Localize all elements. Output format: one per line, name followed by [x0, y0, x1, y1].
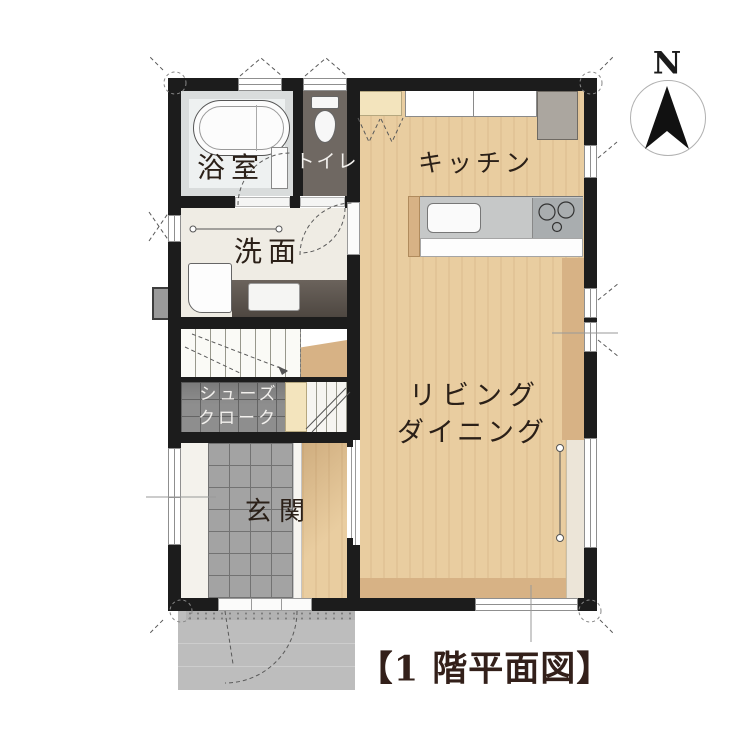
room-label-kitchen: キッチン: [418, 151, 534, 176]
room-label-toilet: トイレ: [295, 153, 358, 172]
room-label-entrance: 玄関: [245, 499, 313, 525]
window-sill-strip: [566, 440, 585, 600]
window-mark-right-b: [598, 283, 619, 300]
wall-top: [168, 78, 597, 91]
ldk-floor-bottom-band: [357, 578, 566, 598]
window-top-toilet: [303, 78, 347, 91]
opening-stub-top: [347, 440, 353, 447]
porch-seam-2: [178, 666, 355, 667]
stove: [532, 198, 583, 238]
bathroom-door-opening: [235, 197, 290, 207]
entrance-door-tick-1: [251, 599, 252, 610]
stairs-divider: [300, 329, 301, 377]
opening-stub-bottom: [347, 538, 353, 545]
entrance-side-ledge: [181, 443, 209, 598]
porch-dotted-band: [186, 611, 355, 620]
floor-plan-title: 【1 階平面図】: [358, 652, 613, 687]
hall-living-opening: [347, 440, 360, 545]
window-kitchen-right: [584, 145, 597, 178]
wall-main-vert-upper: [347, 91, 360, 202]
stairs-landing: [301, 340, 347, 377]
compass-circle: [630, 80, 706, 156]
stairs-upper: [181, 329, 301, 377]
window-open-mark-top-1: [240, 58, 282, 76]
window-top-bathroom: [238, 78, 282, 91]
pantry-cabinet: [358, 91, 402, 116]
room-label-living-line2: ダイニング: [397, 420, 547, 447]
window-right-lower: [584, 322, 597, 352]
window-open-mark-top-2: [305, 58, 347, 76]
wall-below-cloak: [168, 432, 360, 443]
compass-north-label: N: [653, 49, 681, 80]
floor-plan: 浴室 トイレ 洗面 キッチン リビング ダイニング シューズ クローク 玄関 N…: [0, 0, 750, 750]
kitchen-counter-front: [420, 238, 583, 257]
room-label-washroom: 洗面: [234, 238, 302, 266]
room-label-living-line1: リビング: [409, 383, 541, 410]
window-entrance-left: [168, 448, 181, 545]
washroom-door-opening: [347, 202, 360, 255]
vanity-sink: [248, 283, 300, 311]
room-label-shoe-closet-line2: クローク: [198, 411, 278, 428]
wall-cabinet: [405, 90, 537, 117]
wall-stairs-cloak: [181, 377, 360, 382]
porch: [178, 611, 355, 690]
bath-shelf: [271, 147, 288, 189]
refrigerator: [537, 91, 578, 140]
room-label-shoe-closet-line1: シューズ: [199, 387, 278, 404]
shoe-closet-cabinet: [285, 382, 307, 432]
toilet-door-opening: [300, 197, 345, 207]
wall-main-vert-mid: [347, 255, 360, 440]
kitchen-counter-end-cap: [408, 196, 420, 257]
wall-bath-toilet: [293, 91, 303, 196]
toilet-tank: [311, 96, 339, 109]
ldk-floor-right-band: [562, 258, 584, 440]
window-mullion: [169, 497, 180, 498]
window-living-bottom: [475, 598, 578, 611]
porch-seam-1: [178, 643, 355, 644]
wall-below-bath-b: [290, 196, 300, 208]
window-right-upper: [584, 288, 597, 318]
kitchen-sink: [427, 203, 481, 233]
washing-machine: [188, 263, 232, 313]
window-living-right-large: [584, 438, 597, 548]
window-mark-right-a: [598, 142, 617, 158]
entrance-door-tick-2: [281, 599, 282, 610]
wall-below-bath-a: [168, 196, 235, 208]
room-label-bathroom: 浴室: [197, 154, 265, 182]
wall-cabinet-divider: [473, 91, 474, 116]
window-washroom-left: [168, 215, 181, 242]
stairs-lower: [307, 382, 347, 432]
window-mark-left: [149, 212, 169, 241]
wall-washroom-bottom: [168, 317, 360, 329]
wall-main-vert-lower: [347, 545, 360, 611]
entrance-door-opening: [218, 598, 312, 611]
bathtub-divider: [256, 105, 257, 151]
window-mark-right-c: [598, 340, 619, 357]
bathtub-inner: [199, 106, 284, 150]
